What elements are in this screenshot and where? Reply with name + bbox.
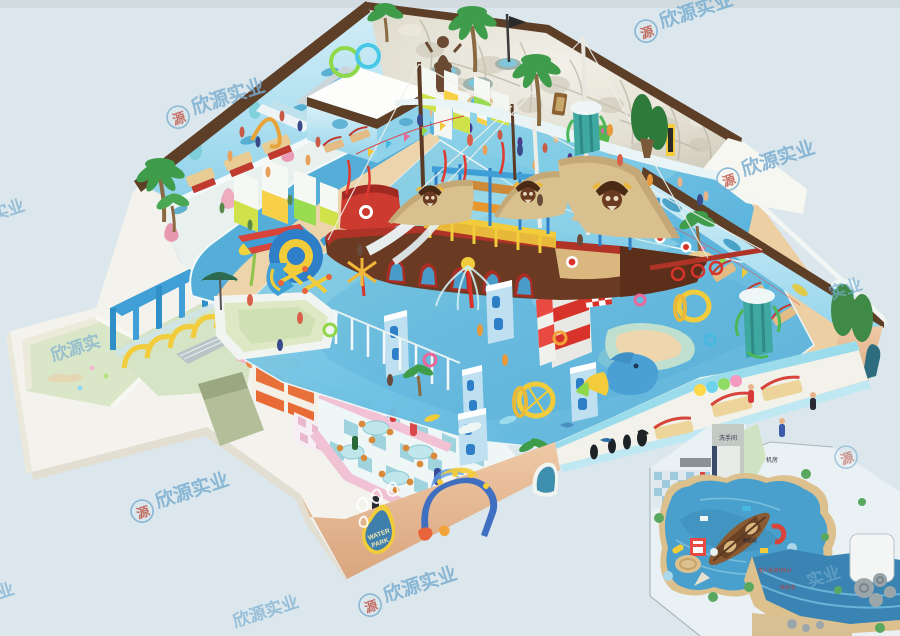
svg-text:机房: 机房 [766, 456, 778, 464]
svg-text:海盗船: 海盗船 [742, 537, 757, 544]
svg-text:戏水池: 戏水池 [780, 584, 795, 591]
svg-text:成人泳池150㎡: 成人泳池150㎡ [758, 567, 791, 574]
svg-text:洗手间: 洗手间 [719, 434, 737, 442]
